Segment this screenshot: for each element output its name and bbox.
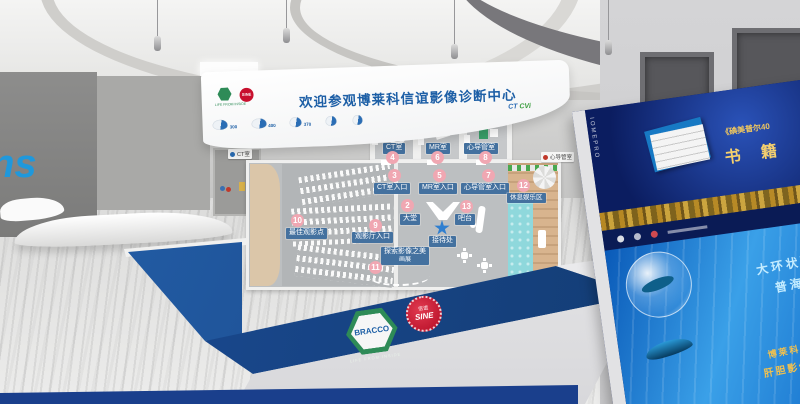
screen-side-text: IOMEPRO bbox=[588, 117, 600, 160]
pendant-rod bbox=[608, 0, 609, 42]
bracco-desk-logo: BRACCO bbox=[343, 306, 401, 357]
screen-logo-dot bbox=[617, 235, 625, 243]
map-hotspot-11[interactable]: 11 bbox=[369, 261, 382, 274]
product-bottle bbox=[325, 116, 338, 126]
corner-logo-green: CVi bbox=[519, 103, 531, 110]
map-theater-screen-wall bbox=[250, 164, 280, 286]
pendant-light bbox=[605, 40, 612, 55]
map-hotspot-13[interactable]: 13 bbox=[460, 200, 473, 213]
map-hotspot-2[interactable]: 2 bbox=[401, 199, 414, 212]
map-hotspot-10[interactable]: 10 bbox=[291, 214, 304, 227]
ct-sign-label: CT室 bbox=[237, 150, 250, 158]
contrast-bottle-icon bbox=[289, 117, 301, 127]
map-label-mr-entrance[interactable]: MR室入口 bbox=[419, 183, 457, 194]
contrast-bottle-icon bbox=[352, 115, 362, 125]
map-label-gallery[interactable]: 探索影像之美 画展 bbox=[381, 247, 429, 265]
map-hotspot-12[interactable]: 12 bbox=[517, 179, 530, 192]
virtual-showroom-scene: ns CT室 心导管室 bbox=[0, 0, 800, 404]
bracco-logo-icon bbox=[217, 87, 231, 100]
pendant-rod bbox=[157, 0, 158, 38]
corner-logo-blue: CT bbox=[508, 103, 518, 110]
map-hotspot-6[interactable]: 6 bbox=[431, 151, 444, 164]
cath-sign-label: 心导管室 bbox=[550, 153, 572, 161]
contrast-bottle-icon bbox=[325, 116, 336, 126]
map-hotspot-3[interactable]: 3 bbox=[388, 169, 401, 182]
banner-corner-logo: CT CVi bbox=[508, 103, 531, 111]
product-bottle: 370 bbox=[289, 117, 311, 128]
wall-brand-text: ns bbox=[0, 142, 37, 187]
screen-title-block: 《碘美普尔40 书 籍 bbox=[721, 109, 800, 168]
product-label: 300 bbox=[230, 124, 238, 129]
screen-title-fragment: 《碘美普尔40 bbox=[721, 109, 800, 138]
product-bottle bbox=[352, 115, 364, 125]
map-umbrella bbox=[533, 166, 556, 189]
contrast-bottle-icon bbox=[251, 118, 266, 129]
door-warning-sign bbox=[239, 182, 245, 191]
map-hotspot-8[interactable]: 8 bbox=[479, 151, 492, 164]
map-label-cath-entrance[interactable]: 心导管室入口 bbox=[461, 183, 509, 194]
ct-room-wall-sign: CT室 bbox=[228, 149, 252, 159]
pendant-rod bbox=[286, 0, 287, 30]
product-bottle: 400 bbox=[251, 118, 276, 129]
map-hotspot-7[interactable]: 7 bbox=[482, 169, 495, 182]
map-label-ct-entrance[interactable]: CT室入口 bbox=[374, 183, 410, 194]
gallery-line1: 探索影像之美 bbox=[384, 248, 426, 257]
product-label: 370 bbox=[304, 122, 312, 127]
pendant-rod bbox=[454, 0, 455, 46]
product-bottle: 300 bbox=[212, 119, 237, 130]
door-sign-icon bbox=[220, 186, 225, 191]
map-hotspot-5[interactable]: 5 bbox=[433, 169, 446, 182]
bracco-tagline: LIFE FROM INSIDE bbox=[215, 102, 246, 107]
map-hotspot-4[interactable]: 4 bbox=[386, 151, 399, 164]
map-label-bar[interactable]: 吧台 bbox=[455, 214, 475, 225]
map-hotspot-9[interactable]: 9 bbox=[369, 219, 382, 232]
contrast-bottle-icon bbox=[212, 120, 227, 131]
map-label-theater-entrance[interactable]: 观影厅入口 bbox=[352, 232, 393, 243]
swimmer-graphic bbox=[640, 273, 676, 296]
cath-equipment-icon bbox=[490, 129, 498, 137]
gallery-line2: 画展 bbox=[384, 257, 426, 265]
map-label-rest-area[interactable]: 休息娱乐区 bbox=[507, 193, 546, 203]
video-screen[interactable]: IOMEPRO 《碘美普尔40 书 籍 大环状磁 普海 bbox=[572, 75, 800, 404]
map-label-reception[interactable]: 接待处 bbox=[429, 236, 456, 247]
sine-desk-badge: 信谊 SINE bbox=[404, 293, 445, 334]
banner-title: 欢迎参观博莱科信谊影像诊断中心 bbox=[267, 82, 548, 112]
map-pool bbox=[508, 196, 533, 277]
map-table bbox=[481, 262, 488, 269]
map-table bbox=[461, 252, 468, 259]
product-label: 400 bbox=[268, 123, 276, 128]
screen-logo-dot bbox=[633, 232, 641, 240]
cath-room-wall-sign: 心导管室 bbox=[541, 152, 574, 162]
sine-logo-icon: SINE bbox=[239, 88, 253, 102]
cath-sign-icon bbox=[543, 155, 548, 160]
ct-sign-icon bbox=[230, 152, 235, 157]
screen-logo-text-bar bbox=[667, 225, 707, 234]
pendant-light bbox=[154, 36, 161, 51]
screen-logo-dot bbox=[650, 230, 658, 238]
pendant-light bbox=[283, 28, 290, 43]
map-label-best-view[interactable]: 最佳观影点 bbox=[286, 228, 327, 239]
banner-product-row: 300 400 370 bbox=[212, 115, 364, 130]
map-label-lobby[interactable]: 大堂 bbox=[400, 214, 420, 225]
pendant-light bbox=[451, 44, 458, 59]
left-wall-panel bbox=[97, 76, 210, 210]
door-sign-icon bbox=[226, 187, 231, 192]
map-rest-lounger bbox=[538, 230, 546, 248]
